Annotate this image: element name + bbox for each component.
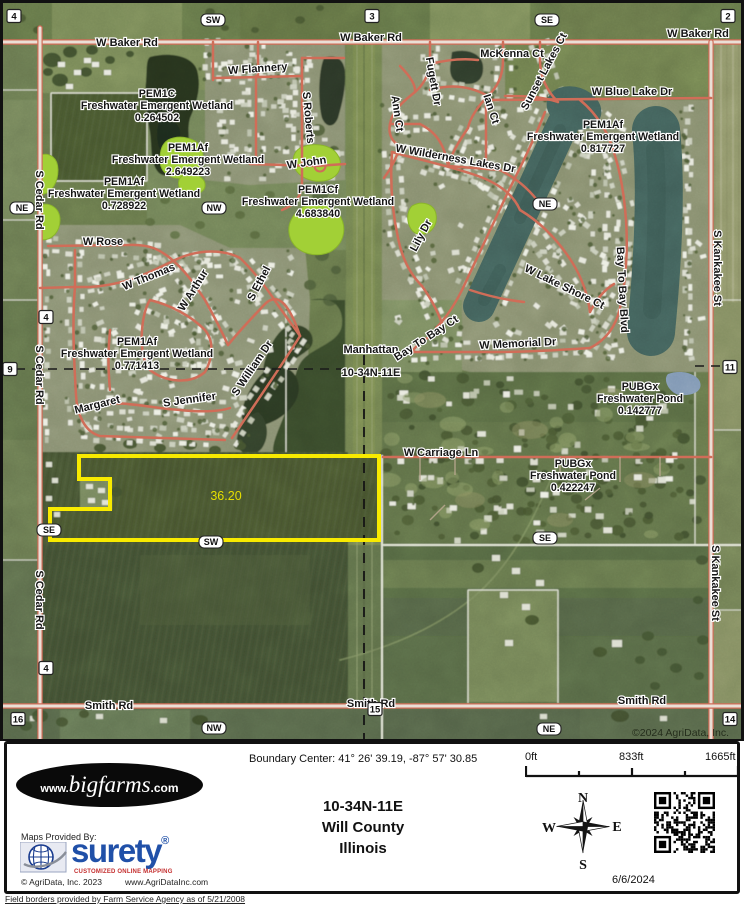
svg-text:W Baker Rd: W Baker Rd xyxy=(96,37,158,49)
svg-text:PEM1Af: PEM1Af xyxy=(117,336,157,348)
svg-text:4: 4 xyxy=(43,312,49,323)
svg-text:PUBGx: PUBGx xyxy=(622,381,659,393)
svg-text:36.20: 36.20 xyxy=(210,489,241,503)
svg-text:Freshwater Emergent Wetland: Freshwater Emergent Wetland xyxy=(61,348,213,360)
svg-text:S: S xyxy=(579,858,587,871)
svg-text:15: 15 xyxy=(370,704,381,715)
svg-text:PUBGx: PUBGx xyxy=(555,458,592,470)
svg-text:S Kankakee St: S Kankakee St xyxy=(711,230,723,306)
svg-text:S Cedar Rd: S Cedar Rd xyxy=(33,570,45,629)
svg-text:14: 14 xyxy=(725,714,736,725)
svg-text:2.649223: 2.649223 xyxy=(166,166,210,178)
svg-text:SW: SW xyxy=(206,15,221,25)
svg-text:W Rose: W Rose xyxy=(83,236,123,248)
svg-text:0.728922: 0.728922 xyxy=(102,200,146,212)
svg-text:W Carriage Ln: W Carriage Ln xyxy=(404,447,479,459)
svg-text:Smith Rd: Smith Rd xyxy=(618,695,666,707)
svg-text:E: E xyxy=(612,820,621,835)
svg-text:NW: NW xyxy=(207,723,222,733)
svg-text:0.422247: 0.422247 xyxy=(551,482,595,494)
svg-text:PEM1C: PEM1C xyxy=(139,88,176,100)
svg-text:W Baker Rd: W Baker Rd xyxy=(340,32,402,44)
svg-text:4: 4 xyxy=(11,11,17,22)
svg-text:McKenna Ct: McKenna Ct xyxy=(480,48,544,60)
svg-text:PEM1Af: PEM1Af xyxy=(168,142,208,154)
svg-text:PEM1Cf: PEM1Cf xyxy=(298,184,338,196)
svg-text:NE: NE xyxy=(539,199,552,209)
svg-text:SE: SE xyxy=(541,15,553,25)
svg-text:S Cedar Rd: S Cedar Rd xyxy=(33,345,45,404)
svg-text:3: 3 xyxy=(369,11,374,22)
svg-text:W Blue Lake Dr: W Blue Lake Dr xyxy=(592,86,673,98)
svg-text:4: 4 xyxy=(43,663,49,674)
svg-text:Freshwater Emergent Wetland: Freshwater Emergent Wetland xyxy=(242,196,394,208)
svg-text:NE: NE xyxy=(16,203,29,213)
svg-text:SW: SW xyxy=(204,537,219,547)
svg-text:4.683840: 4.683840 xyxy=(296,208,340,220)
svg-text:0.142777: 0.142777 xyxy=(618,405,662,417)
svg-text:0.771413: 0.771413 xyxy=(115,360,159,372)
svg-text:SE: SE xyxy=(539,533,551,543)
svg-text:NE: NE xyxy=(543,724,556,734)
svg-text:Manhattan: Manhattan xyxy=(344,344,399,356)
svg-text:Smith Rd: Smith Rd xyxy=(85,700,133,712)
svg-text:NW: NW xyxy=(207,203,222,213)
svg-text:Freshwater Emergent Wetland: Freshwater Emergent Wetland xyxy=(112,154,264,166)
svg-text:16: 16 xyxy=(13,714,24,725)
svg-text:PEM1Af: PEM1Af xyxy=(104,176,144,188)
svg-text:W: W xyxy=(542,821,556,836)
svg-text:S Kankakee St: S Kankakee St xyxy=(709,545,721,621)
svg-text:PEM1Af: PEM1Af xyxy=(583,119,623,131)
svg-text:Freshwater Emergent Wetland: Freshwater Emergent Wetland xyxy=(527,131,679,143)
svg-text:Freshwater Pond: Freshwater Pond xyxy=(530,470,616,482)
svg-text:S Cedar Rd: S Cedar Rd xyxy=(33,170,45,229)
svg-text:2: 2 xyxy=(725,11,730,22)
svg-text:0.817727: 0.817727 xyxy=(581,143,625,155)
svg-text:Freshwater Emergent Wetland: Freshwater Emergent Wetland xyxy=(81,100,233,112)
svg-text:9: 9 xyxy=(7,364,12,375)
svg-text:11: 11 xyxy=(725,362,736,373)
svg-text:SE: SE xyxy=(43,525,55,535)
svg-text:0.264502: 0.264502 xyxy=(135,112,179,124)
svg-text:10-34N-11E: 10-34N-11E xyxy=(342,367,401,379)
svg-text:Freshwater Emergent Wetland: Freshwater Emergent Wetland xyxy=(48,188,200,200)
svg-text:Freshwater Pond: Freshwater Pond xyxy=(597,393,683,405)
svg-text:W Baker Rd: W Baker Rd xyxy=(667,28,729,40)
svg-text:©2024 AgriData, Inc.: ©2024 AgriData, Inc. xyxy=(632,727,729,739)
